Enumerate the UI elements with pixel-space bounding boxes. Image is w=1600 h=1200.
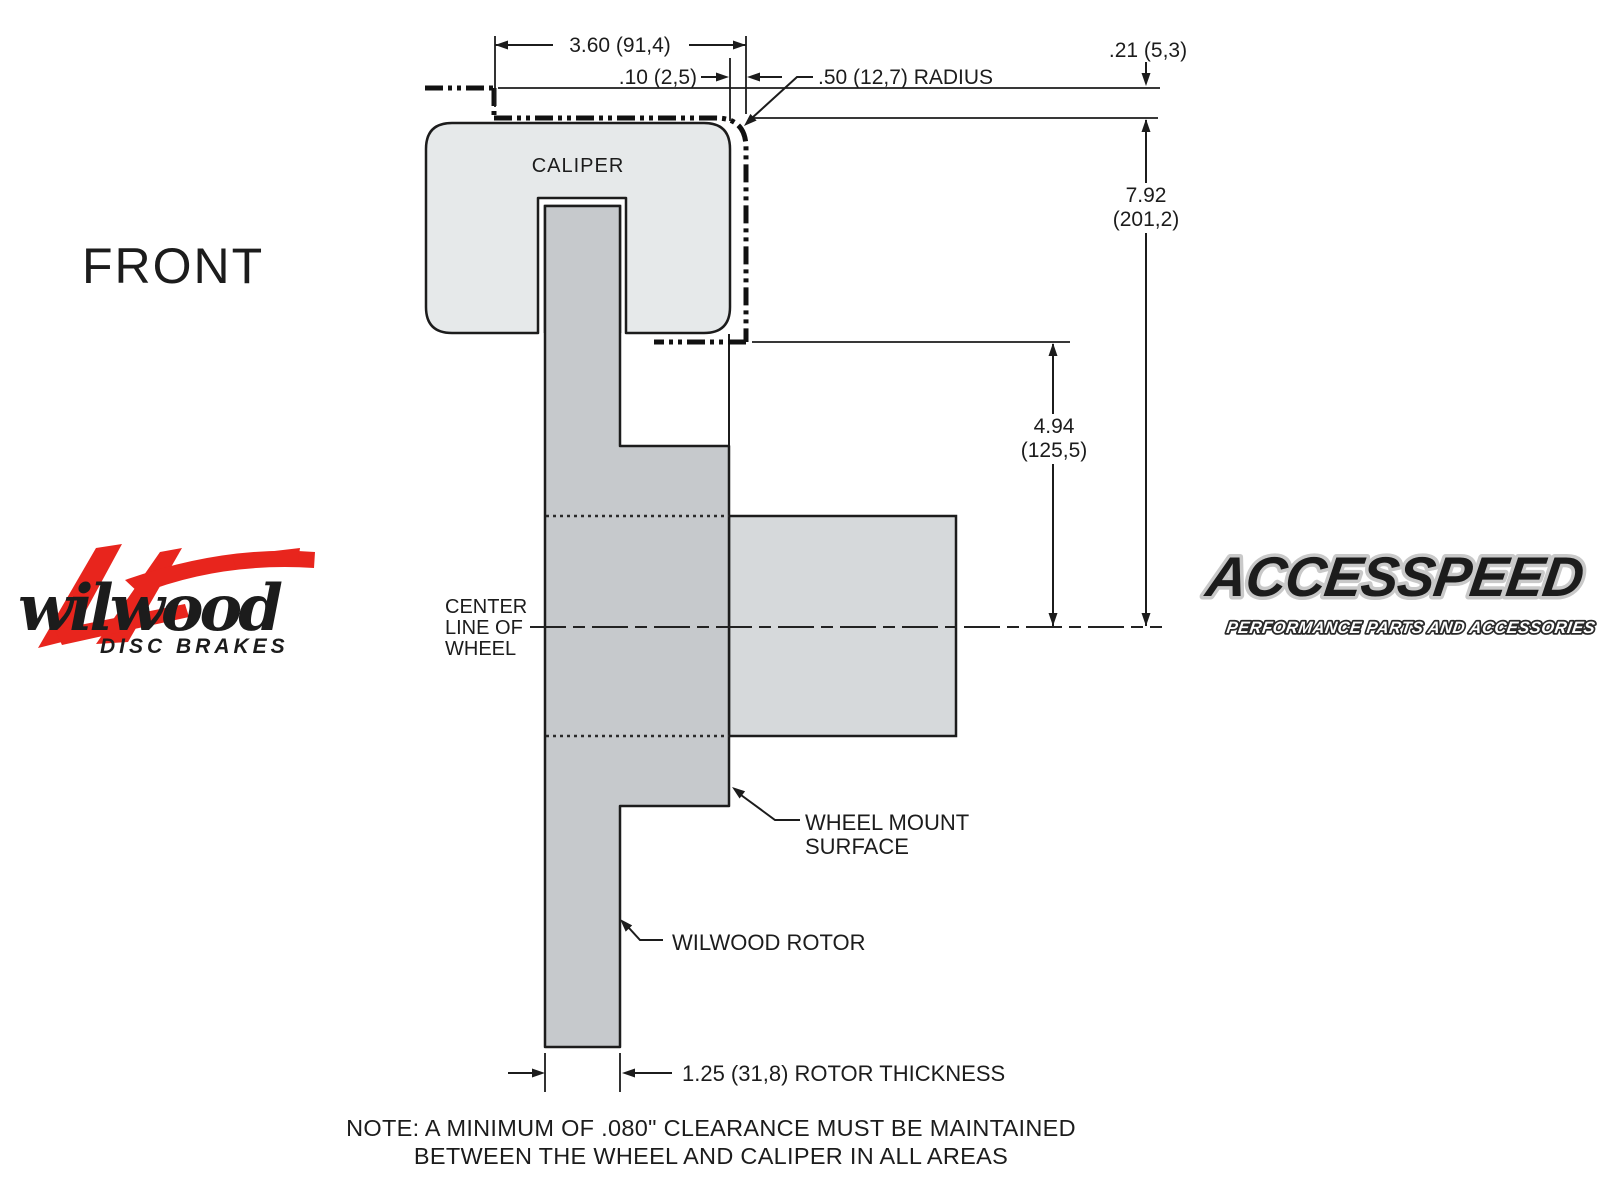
dim-rotor-thickness-label: 1.25 (31,8) ROTOR THICKNESS: [682, 1061, 1005, 1086]
dim-wheel-clearance-label: .10 (2,5): [619, 66, 697, 89]
accesspeed-tagline: PERFORMANCE PARTS AND ACCESSORIES: [1225, 618, 1596, 637]
wilwood-tagline: DISC BRAKES: [100, 635, 289, 658]
section-shapes: [426, 123, 956, 1047]
dim-wheel-inner-depth-metric: (201,2): [1113, 208, 1180, 231]
caliper-label: CALIPER: [532, 155, 625, 177]
rotor-in-slot: [545, 206, 620, 333]
dim-wheel-inner-depth-value: 7.92: [1126, 184, 1167, 207]
note-line1: NOTE: A MINIMUM OF .080" CLEARANCE MUST …: [346, 1115, 1076, 1141]
centerline-label-line1: CENTER: [445, 596, 527, 618]
wheel-clearance-diagram-page: 3.60 (91,4) .10 (2,5) .50 (12,7) RADIUS …: [0, 0, 1600, 1200]
dim-lip-depth-label: .21 (5,3): [1109, 39, 1187, 62]
wheel-mount-label-line1: WHEEL MOUNT: [805, 810, 969, 835]
dim-corner-radius-label: .50 (12,7) RADIUS: [818, 66, 993, 89]
dim-mount-to-lip-value: 4.94: [1034, 415, 1075, 438]
accesspeed-wordmark: ACCESSPEED: [1201, 545, 1588, 608]
wilwood-logo: wilwood DISC BRAKES: [18, 544, 315, 658]
accesspeed-logo: ACCESSPEED PERFORMANCE PARTS AND ACCESSO…: [1196, 545, 1600, 637]
rotor-callout-label: WILWOOD ROTOR: [672, 930, 866, 955]
dim-rotor-thickness: 1.25 (31,8) ROTOR THICKNESS: [508, 1061, 1005, 1086]
centerline-label: CENTER LINE OF WHEEL: [445, 596, 527, 660]
diagram-svg: 3.60 (91,4) .10 (2,5) .50 (12,7) RADIUS …: [0, 0, 1600, 1200]
wheel-mount-callout: WHEEL MOUNT SURFACE: [732, 787, 969, 859]
wheel-mount-label-line2: SURFACE: [805, 834, 909, 859]
rotor-callout: WILWOOD ROTOR: [620, 919, 866, 955]
note-line2: BETWEEN THE WHEEL AND CALIPER IN ALL ARE…: [414, 1143, 1008, 1169]
dim-mount-to-lip-metric: (125,5): [1021, 439, 1088, 462]
view-label-front: FRONT: [82, 238, 264, 294]
clearance-note: NOTE: A MINIMUM OF .080" CLEARANCE MUST …: [346, 1115, 1076, 1169]
dim-caliper-width: 3.60 (91,4): [495, 33, 746, 58]
dim-wheel-clearance: .10 (2,5): [619, 66, 782, 89]
centerline-label-line2: LINE OF: [445, 617, 523, 639]
dim-corner-radius: .50 (12,7) RADIUS: [744, 66, 993, 126]
centerline-label-line3: WHEEL: [445, 638, 516, 660]
dim-lip-depth: .21 (5,3): [1109, 39, 1187, 86]
dim-mount-to-lip: 4.94 (125,5): [1013, 343, 1095, 626]
dim-wheel-inner-depth: 7.92 (201,2): [1107, 119, 1185, 626]
dim-caliper-width-label: 3.60 (91,4): [569, 34, 671, 57]
